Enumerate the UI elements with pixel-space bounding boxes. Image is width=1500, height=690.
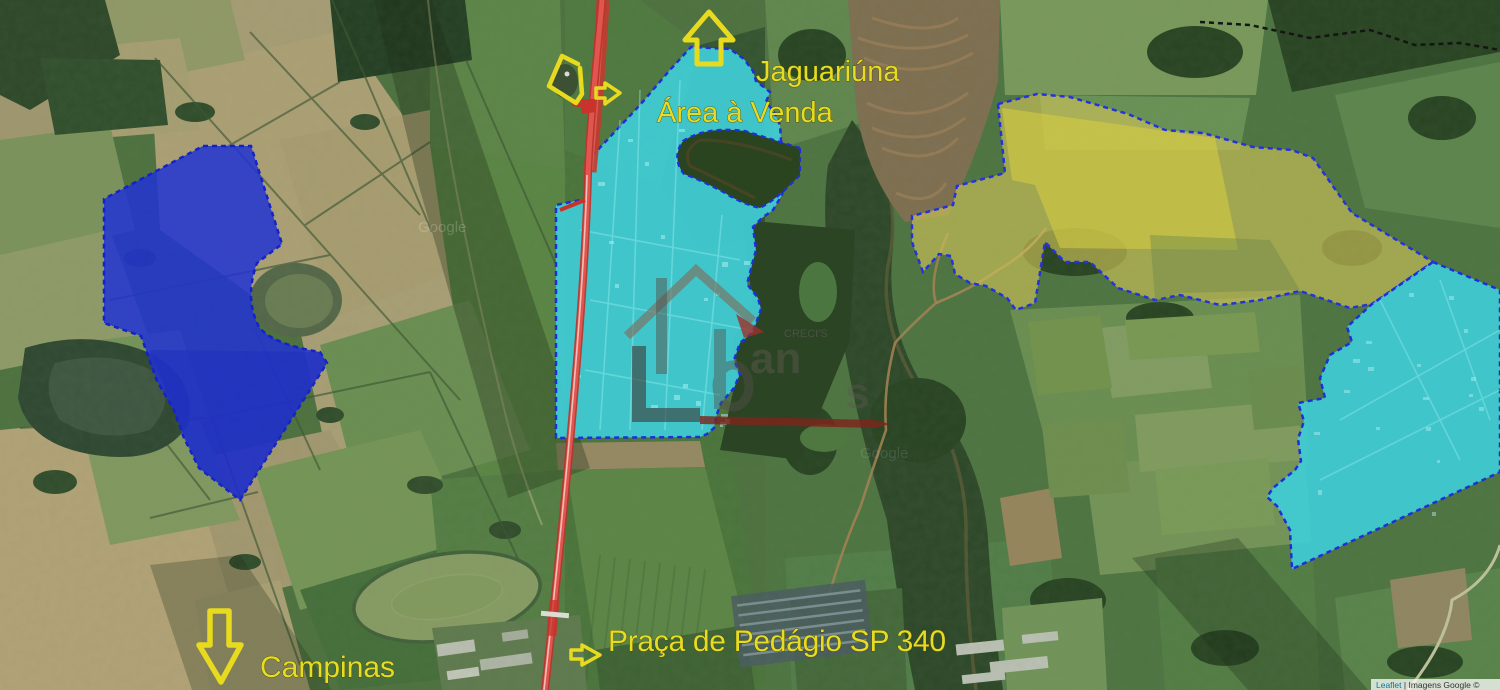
svg-text:Praça de Pedágio SP 340: Praça de Pedágio SP 340	[608, 625, 946, 658]
svg-text:Google: Google	[418, 219, 466, 236]
svg-text:s: s	[845, 369, 869, 418]
svg-text:Jaguariúna: Jaguariúna	[756, 56, 900, 88]
svg-text:Área à Venda: Área à Venda	[657, 96, 834, 129]
svg-text:Campinas: Campinas	[260, 651, 395, 684]
svg-text:CRECI'S: CRECI'S	[784, 328, 828, 340]
svg-text:Google: Google	[860, 445, 908, 462]
svg-text:an: an	[750, 334, 801, 383]
